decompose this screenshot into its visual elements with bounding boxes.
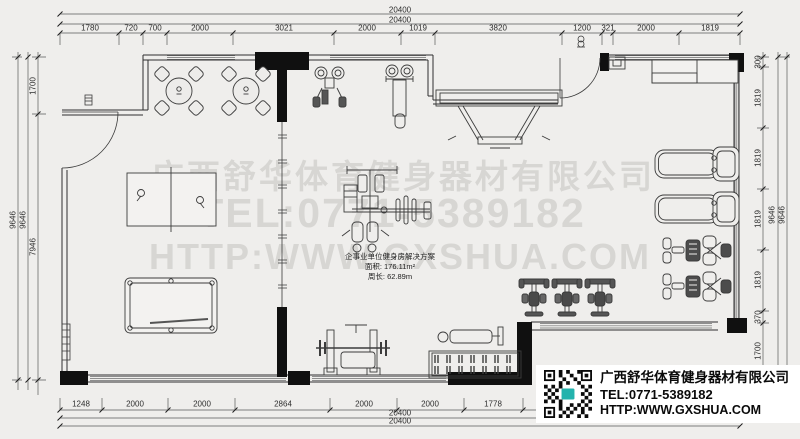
floor-plan-drawing: 广西舒华体育健身器材有限公司 TEL:0771-5389182 HTTP:WWW… (0, 0, 800, 439)
treadmill (655, 192, 739, 226)
dim-top-total-inner: 20400 (389, 16, 411, 25)
round-table-with-chairs (221, 66, 272, 117)
annotation-symbol (577, 36, 585, 47)
dim-bottom-seg: 1248 (72, 400, 90, 409)
entry-door (62, 112, 118, 168)
dim-top-seg: 1200 (573, 24, 591, 33)
qr-center-logo (562, 388, 575, 399)
card-company: 广西舒华体育健身器材有限公司 (600, 370, 789, 387)
dim-bottom-seg: 2000 (193, 400, 211, 409)
dim-right-total-outer: 9646 (778, 206, 787, 224)
treadmill (655, 147, 739, 181)
storage-counter (652, 60, 738, 83)
dim-bottom-seg: 2000 (421, 400, 439, 409)
dim-top-seg: 2000 (358, 24, 376, 33)
dim-bottom-seg: 1778 (484, 400, 502, 409)
plan-perimeter: 周长: 62.89m (345, 272, 435, 282)
dim-top-seg: 1819 (701, 24, 719, 33)
dim-top-seg: 700 (148, 24, 161, 33)
dim-bottom-seg: 2864 (274, 400, 292, 409)
shoulder-press-machine (313, 67, 346, 107)
dim-right-seg: 1700 (754, 342, 763, 360)
bench-press-station (316, 325, 390, 375)
spin-bike (552, 279, 582, 316)
elliptical-trainer (663, 236, 731, 265)
plan-title: 企事业单位健身房解决方案 (345, 252, 435, 262)
dim-left-seg: 1700 (29, 77, 38, 95)
spin-bike (585, 279, 615, 316)
elliptical-trainer (663, 272, 731, 301)
company-info-card: 广西舒华体育健身器材有限公司 TEL:0771-5389182 HTTP:WWW… (536, 365, 800, 423)
dim-top-seg: 1780 (81, 24, 99, 33)
dim-right-seg: 1819 (754, 89, 763, 107)
wall-cabinet (609, 57, 625, 69)
dim-bottom-seg: 2000 (126, 400, 144, 409)
dim-bottom-seg: 2000 (355, 400, 373, 409)
spin-bike (519, 279, 549, 316)
card-website: HTTP:WWW.GXSHUA.COM (600, 403, 789, 419)
dim-top-seg: 1019 (409, 24, 427, 33)
electrical-symbol (85, 95, 92, 105)
plan-area-label: 企事业单位健身房解决方案 面积: 176.11m² 周长: 62.89m (345, 252, 435, 281)
dim-top-seg: 3820 (489, 24, 507, 33)
dim-left-total-outer: 9646 (9, 211, 18, 229)
dim-right-seg: 1819 (754, 271, 763, 289)
dim-top-seg: 2000 (191, 24, 209, 33)
dim-right-seg: 300 (754, 55, 763, 68)
dim-top-seg: 321 (601, 24, 614, 33)
upper-right-door (560, 58, 600, 98)
dim-top-seg: 2000 (637, 24, 655, 33)
dim-right-total-inner: 9646 (768, 206, 777, 224)
dim-left-seg: 7946 (29, 238, 38, 256)
flat-bench (438, 327, 503, 345)
dim-bottom-total-outer: 20400 (389, 417, 411, 426)
dim-right-seg: 1819 (754, 149, 763, 167)
plan-area: 面积: 176.11m² (345, 262, 435, 272)
dim-right-seg: 1819 (754, 210, 763, 228)
table-tennis-table (127, 167, 216, 232)
lat-pulldown-machine (386, 65, 413, 128)
glass-partition (278, 122, 287, 307)
card-tel: TEL:0771-5389182 (600, 387, 789, 403)
dim-right-seg: 370 (754, 310, 763, 323)
dim-top-seg: 3021 (275, 24, 293, 33)
wall-mounted-rack-frame (436, 90, 562, 148)
dim-top-seg: 720 (124, 24, 137, 33)
multi-station-gym (342, 166, 431, 252)
billiard-table (125, 278, 217, 333)
qr-code (544, 370, 592, 418)
dim-top-total-outer: 20400 (389, 6, 411, 15)
round-table-with-chairs (154, 66, 205, 117)
radiator (62, 324, 70, 360)
dim-left-total-inner: 9646 (19, 211, 28, 229)
